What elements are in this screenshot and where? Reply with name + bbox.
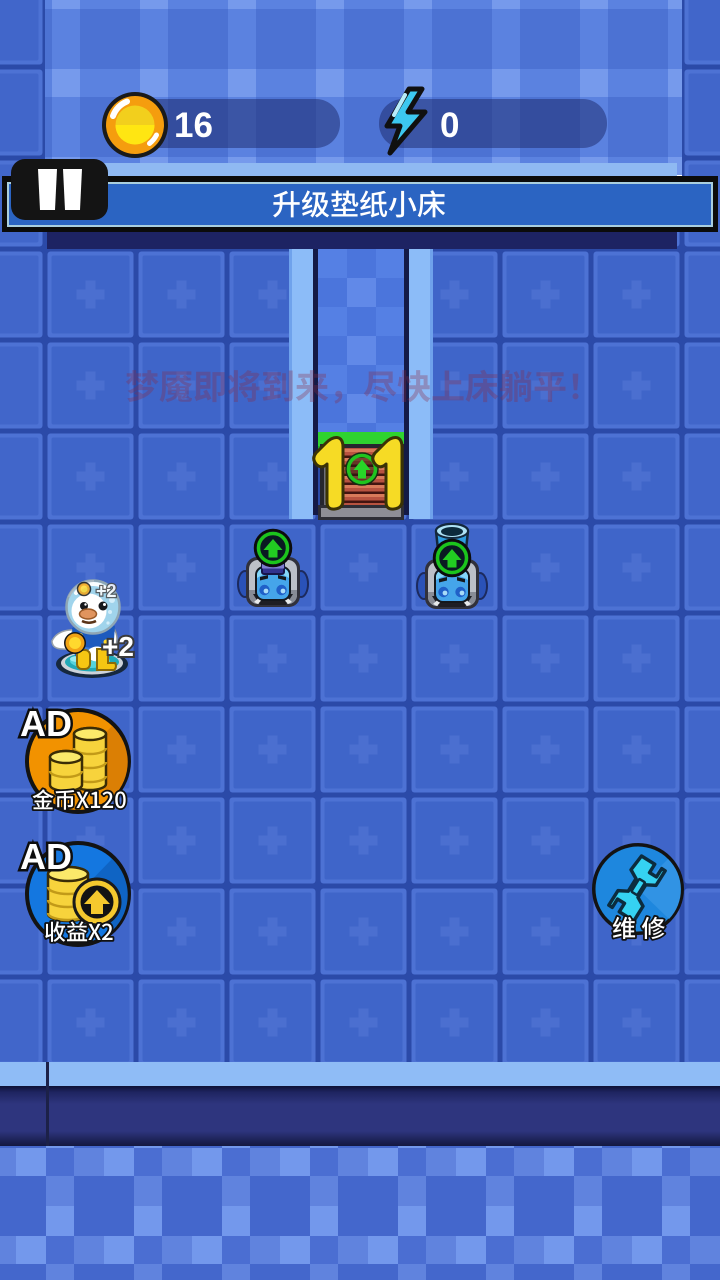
svg-text:+2: +2 <box>96 581 117 601</box>
svg-text:0: 0 <box>440 106 459 145</box>
svg-text:+2: +2 <box>102 631 134 662</box>
svg-text:AD: AD <box>20 836 72 877</box>
svg-text:AD: AD <box>20 703 72 744</box>
svg-text:16: 16 <box>174 106 213 145</box>
